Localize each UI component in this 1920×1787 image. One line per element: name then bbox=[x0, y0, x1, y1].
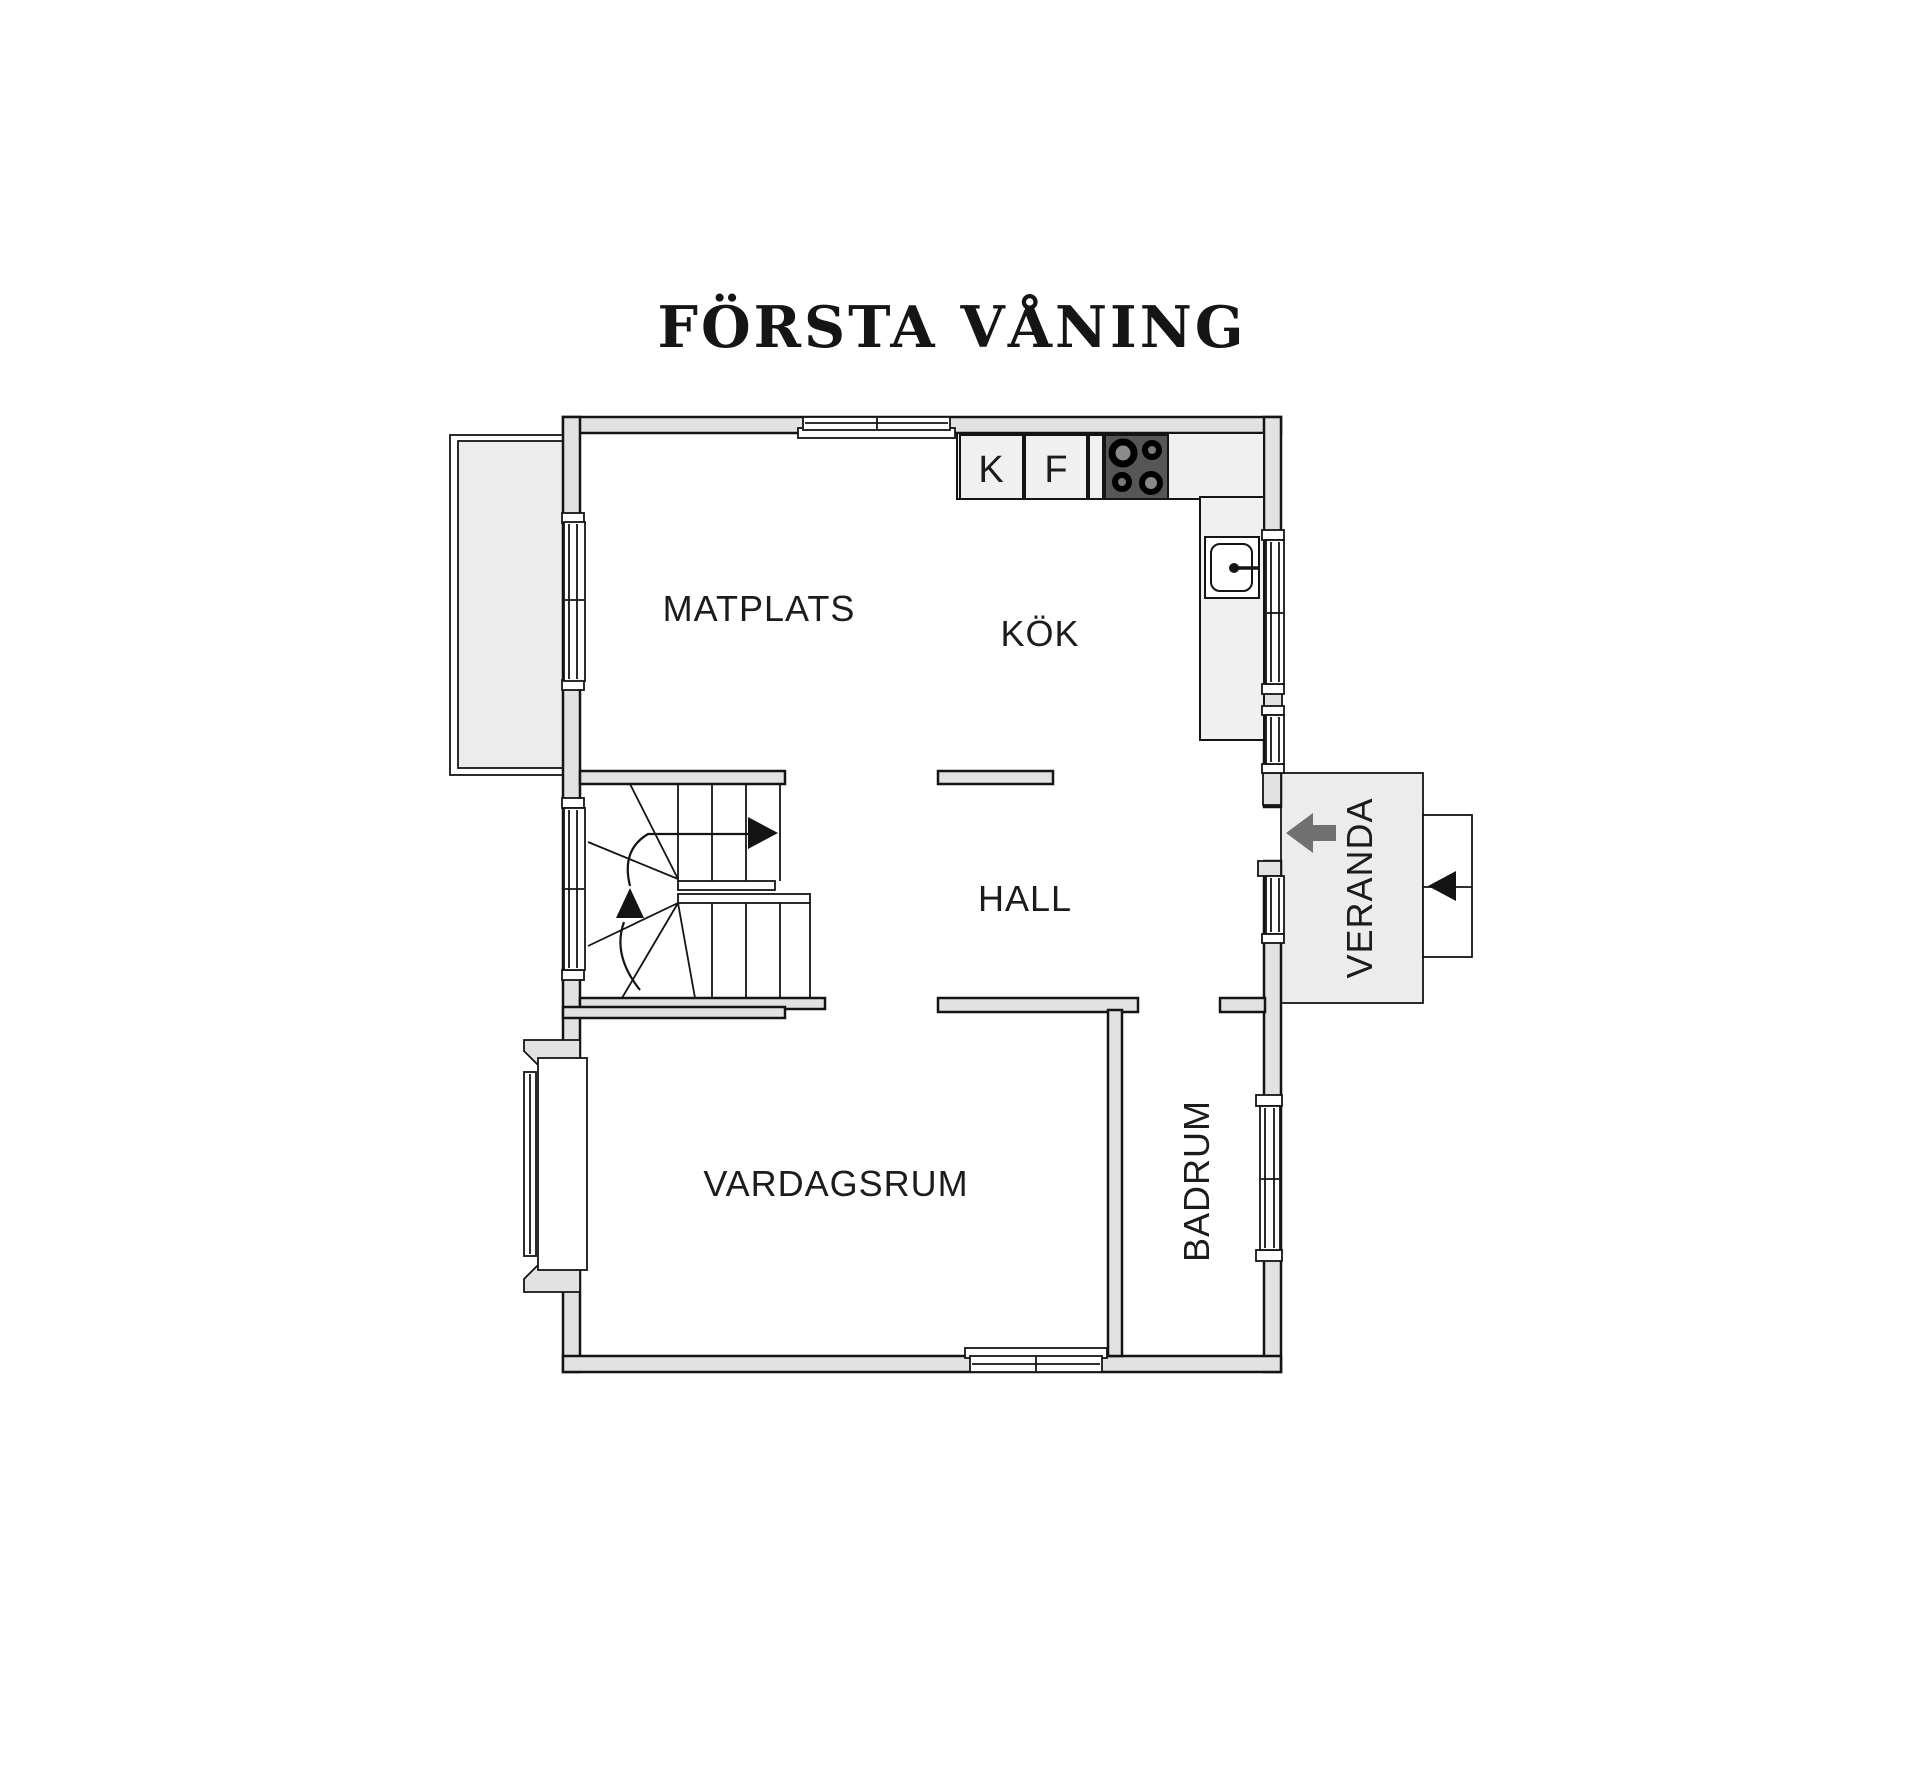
staircase bbox=[588, 784, 810, 998]
stair-up-arrow-icon bbox=[616, 888, 644, 918]
hall-label: HALL bbox=[978, 878, 1072, 919]
matplats-label: MATPLATS bbox=[663, 588, 856, 629]
stair-walkline-upper bbox=[628, 834, 750, 886]
vardagsrum-label: VARDAGSRUM bbox=[703, 1163, 968, 1204]
wall-badrum-north bbox=[1220, 998, 1265, 1012]
floorplan-drawing: FÖRSTA VÅNING VERANDA bbox=[0, 0, 1920, 1787]
veranda: VERANDA bbox=[1281, 773, 1472, 1003]
veranda-steps bbox=[1423, 815, 1472, 957]
floor-title: FÖRSTA VÅNING bbox=[657, 292, 1246, 361]
window-south bbox=[965, 1348, 1107, 1372]
floorplan-page: FÖRSTA VÅNING VERANDA bbox=[0, 0, 1920, 1787]
wall-badrum-west bbox=[1108, 1010, 1122, 1356]
terrace bbox=[450, 435, 564, 775]
sink-icon bbox=[1205, 537, 1259, 598]
door-jamb-bottom bbox=[1258, 861, 1281, 876]
walls bbox=[563, 417, 1282, 1372]
stove-icon bbox=[1105, 435, 1168, 499]
veranda-label: VERANDA bbox=[1339, 797, 1380, 978]
stair-walkline-lower bbox=[620, 922, 640, 990]
window-west-stair bbox=[562, 798, 585, 980]
window-east-hall bbox=[1262, 876, 1284, 943]
window-west-bay bbox=[524, 1040, 587, 1292]
kok-label: KÖK bbox=[1000, 613, 1079, 654]
window-west-matplats bbox=[562, 513, 585, 690]
windows bbox=[524, 417, 1284, 1372]
wall-south bbox=[563, 1356, 1281, 1372]
window-east-badrum bbox=[1256, 1095, 1282, 1261]
wall-stair-north bbox=[580, 771, 785, 784]
freezer-label: F bbox=[1044, 449, 1067, 491]
badrum-label: BADRUM bbox=[1176, 1100, 1217, 1262]
window-east-short bbox=[1262, 706, 1284, 773]
wall-vardagsrum-north bbox=[563, 1007, 785, 1018]
window-north bbox=[798, 417, 955, 438]
window-east-kitchen bbox=[1262, 530, 1284, 694]
stair-right-arrow-icon bbox=[748, 817, 778, 849]
half-wall-hall bbox=[938, 771, 1053, 784]
door-jamb-top bbox=[1263, 773, 1281, 805]
kitchen-counter: K F bbox=[957, 433, 1264, 740]
cabinet-divider bbox=[1089, 435, 1103, 499]
fridge-label: K bbox=[978, 449, 1003, 491]
